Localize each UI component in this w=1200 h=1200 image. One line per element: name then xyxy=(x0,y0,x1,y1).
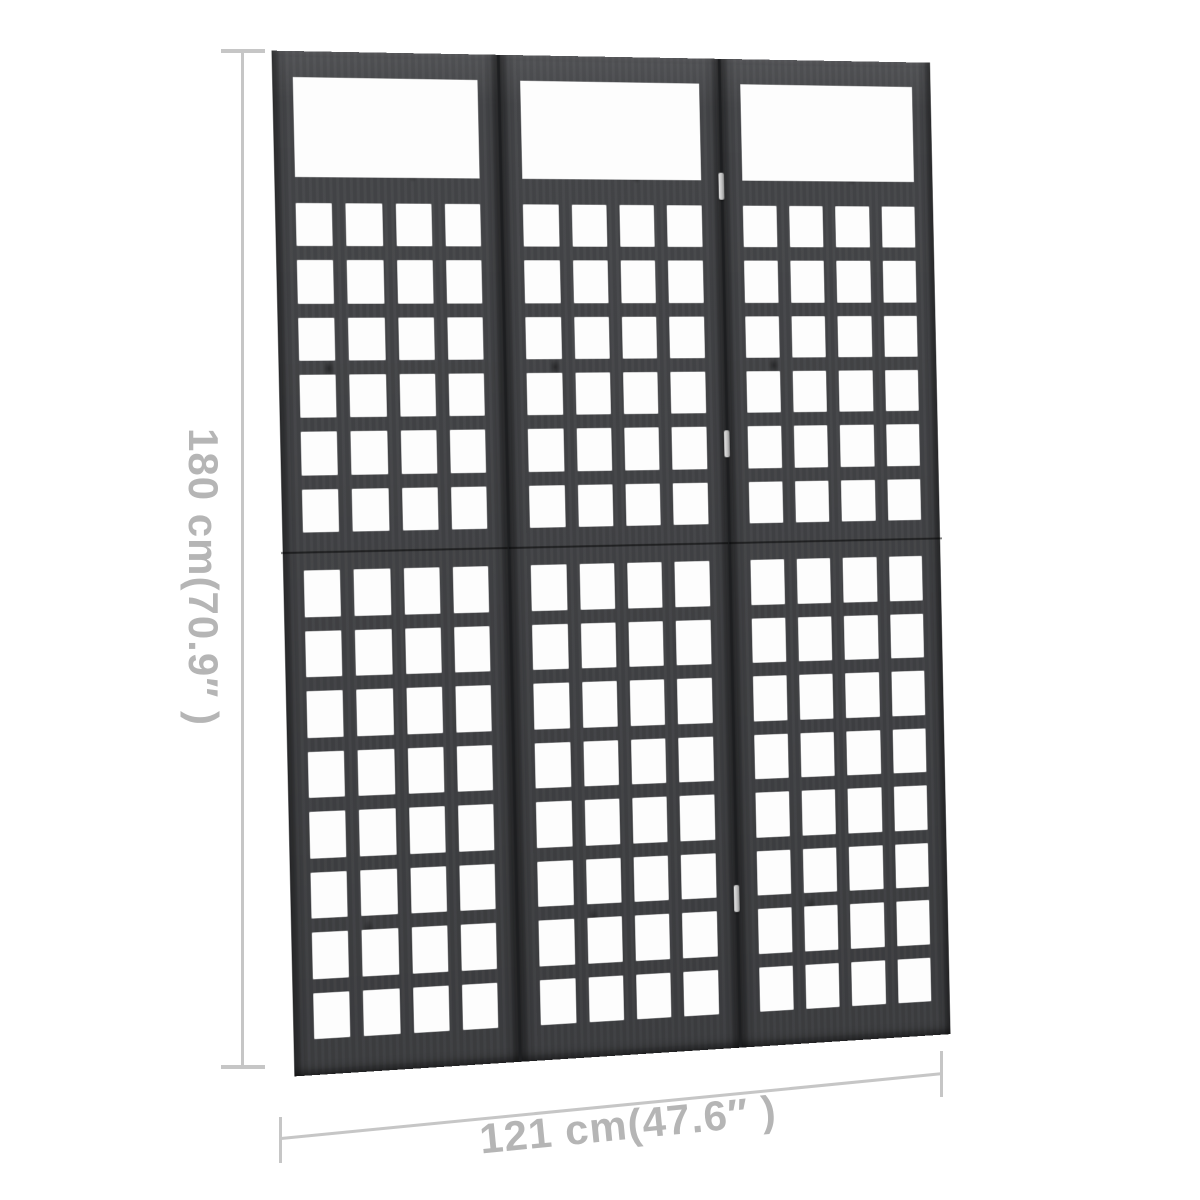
lattice-hole xyxy=(410,866,447,914)
height-dimension-line xyxy=(241,52,244,1068)
lattice-hole xyxy=(301,432,338,476)
lattice-hole xyxy=(409,806,446,854)
lattice-hole xyxy=(574,317,610,359)
panel-mid-rail xyxy=(282,528,508,571)
lattice-hole xyxy=(747,426,782,468)
lattice-hole xyxy=(454,626,491,673)
lattice-hole xyxy=(312,931,349,979)
lattice-hole xyxy=(794,426,829,468)
lattice-hole xyxy=(803,847,838,893)
lattice-hole xyxy=(835,206,869,247)
lattice-hole xyxy=(305,630,342,677)
lattice-hole xyxy=(313,991,350,1039)
lattice-hole xyxy=(758,907,793,953)
lattice-hole xyxy=(748,481,783,523)
lattice-hole xyxy=(744,261,779,303)
lattice-hole xyxy=(363,988,400,1036)
hinge xyxy=(718,173,724,200)
lattice-hole xyxy=(802,789,837,835)
lattice-hole xyxy=(631,738,667,784)
lattice-hole xyxy=(355,628,392,675)
lattice-hole xyxy=(399,374,436,417)
lattice-hole xyxy=(890,613,924,658)
lattice-hole xyxy=(350,374,387,417)
panel-open-window xyxy=(740,84,914,182)
lattice-hole xyxy=(672,427,707,469)
width-dimension-tick-right xyxy=(940,1051,943,1097)
hinge xyxy=(724,430,730,457)
divider-panel xyxy=(717,59,950,1048)
lattice-hole xyxy=(843,557,877,602)
lattice-hole xyxy=(579,563,615,609)
lattice-hole xyxy=(578,484,614,527)
lattice-hole xyxy=(795,480,830,522)
lattice-hole xyxy=(745,316,780,358)
panel-rail xyxy=(723,180,933,206)
lattice-hole xyxy=(753,675,788,721)
lattice-hole xyxy=(395,204,432,247)
lattice-hole xyxy=(635,914,671,961)
lattice-hole xyxy=(886,424,920,466)
lattice-hole xyxy=(527,373,563,416)
lattice-hole xyxy=(299,375,336,419)
lattice-hole xyxy=(405,627,442,674)
lattice-hole xyxy=(632,797,668,844)
panel-rail xyxy=(503,179,721,206)
lattice-hole xyxy=(756,849,791,895)
lattice-hole xyxy=(581,622,617,668)
lattice-hole xyxy=(667,205,702,247)
width-dimension-label: 121 cm(47.6″ ) xyxy=(477,1087,778,1164)
lattice-hole xyxy=(302,489,339,533)
lattice-hole xyxy=(532,623,568,670)
lattice-hole xyxy=(398,317,435,360)
lattice-hole xyxy=(891,671,925,716)
height-dimension-label: 180 cm(70.9″ ) xyxy=(179,428,227,726)
lattice-hole xyxy=(793,371,828,413)
lattice-hole xyxy=(844,615,878,660)
panel-top-rail xyxy=(500,55,718,84)
lattice-hole xyxy=(583,740,619,787)
lattice-hole xyxy=(406,687,443,734)
lattice-hole xyxy=(447,317,484,360)
lattice-hole xyxy=(411,925,448,973)
lattice-hole xyxy=(539,919,575,966)
lattice-hole xyxy=(358,748,395,796)
lattice-hole xyxy=(347,260,384,303)
lattice-hole xyxy=(535,742,571,789)
lattice-hole xyxy=(636,972,672,1019)
divider-panel xyxy=(272,51,520,1077)
lattice-hole xyxy=(896,900,930,946)
height-dimension-tick-bottom xyxy=(221,1065,265,1069)
lattice-hole xyxy=(841,480,875,522)
height-dimension-tick-top xyxy=(221,49,265,53)
lattice-hole xyxy=(309,810,346,858)
lattice-hole xyxy=(669,316,704,358)
lattice-hole xyxy=(750,559,785,605)
lattice-hole xyxy=(586,857,622,904)
lattice-hole xyxy=(354,568,391,615)
lattice-hole xyxy=(526,317,562,360)
lattice-hole xyxy=(536,801,572,848)
lattice-hole xyxy=(451,486,488,529)
product-dimension-image: 180 cm(70.9″ ) 121 cm(47.6″ ) xyxy=(0,0,1200,1200)
lattice-hole xyxy=(357,688,394,735)
lattice-hole xyxy=(895,843,929,889)
lattice-hole xyxy=(296,203,333,246)
lattice-hole xyxy=(848,787,882,833)
panel-mid-rail xyxy=(510,524,728,566)
lattice-hole xyxy=(534,682,570,729)
lattice-hole xyxy=(462,982,499,1030)
lattice-hole xyxy=(404,567,441,614)
lattice-hole xyxy=(400,430,437,473)
lattice-hole xyxy=(676,619,711,665)
lattice-hole xyxy=(306,690,343,738)
lattice-hole xyxy=(675,561,710,607)
lattice-hole xyxy=(892,728,926,773)
panel-mid-rail xyxy=(730,519,940,560)
lattice-hole xyxy=(531,564,567,610)
lattice-hole xyxy=(684,969,719,1016)
lattice-hole xyxy=(449,373,486,416)
lattice-hole xyxy=(619,205,655,247)
lattice-hole xyxy=(671,372,706,414)
lattice-hole xyxy=(571,205,607,247)
lattice-hole xyxy=(621,261,657,303)
lattice-hole xyxy=(576,428,612,471)
lattice-hole xyxy=(402,487,439,531)
lattice-hole xyxy=(881,207,915,248)
panel-rail xyxy=(274,177,500,204)
lattice-hole xyxy=(838,316,872,358)
lattice-hole xyxy=(538,860,574,907)
panel-open-window xyxy=(293,77,480,178)
lattice-hole xyxy=(308,750,345,798)
lattice-hole xyxy=(297,260,334,303)
lattice-hole xyxy=(797,558,832,603)
lattice-hole xyxy=(805,962,840,1008)
panel-open-window xyxy=(520,81,700,181)
lattice-hole xyxy=(413,985,450,1033)
lattice-hole xyxy=(455,685,492,732)
lattice-hole xyxy=(849,845,883,891)
width-dimension-tick-left xyxy=(279,1117,282,1163)
lattice-hole xyxy=(679,736,714,782)
lattice-hole xyxy=(397,260,434,303)
lattice-hole xyxy=(346,203,383,246)
lattice-hole xyxy=(887,479,921,521)
lattice-hole xyxy=(457,745,494,792)
lattice-hole xyxy=(458,804,495,851)
lattice-hole xyxy=(682,911,717,958)
lattice-hole xyxy=(523,204,559,247)
panel-upper-lattice xyxy=(296,203,488,533)
lattice-hole xyxy=(623,372,659,414)
lattice-hole xyxy=(348,317,385,360)
lattice-hole xyxy=(298,317,335,360)
lattice-hole xyxy=(840,425,874,467)
lattice-hole xyxy=(755,791,790,837)
lattice-hole xyxy=(789,206,824,248)
lattice-hole xyxy=(677,678,712,724)
lattice-hole xyxy=(681,853,716,900)
lattice-hole xyxy=(628,621,664,667)
lattice-hole xyxy=(446,260,483,303)
lattice-hole xyxy=(889,556,923,601)
lattice-hole xyxy=(800,731,835,777)
lattice-hole xyxy=(746,371,781,413)
lattice-hole xyxy=(445,204,482,247)
lattice-hole xyxy=(310,871,347,919)
panel-upper-lattice xyxy=(523,204,708,528)
lattice-hole xyxy=(622,316,658,358)
lattice-hole xyxy=(897,957,931,1003)
lattice-hole xyxy=(754,733,789,779)
lattice-hole xyxy=(885,370,919,412)
lattice-hole xyxy=(540,978,576,1026)
lattice-hole xyxy=(668,261,703,303)
lattice-hole xyxy=(625,483,661,526)
hinge xyxy=(733,885,739,912)
lattice-hole xyxy=(453,566,490,613)
lattice-hole xyxy=(459,863,496,911)
lattice-hole xyxy=(627,562,663,608)
lattice-hole xyxy=(799,674,834,720)
lattice-hole xyxy=(845,672,879,717)
lattice-hole xyxy=(582,681,618,728)
panel-top-rail xyxy=(720,59,930,87)
lattice-hole xyxy=(894,785,928,831)
lattice-hole xyxy=(680,794,715,840)
panel-lower-lattice xyxy=(531,561,719,1025)
lattice-hole xyxy=(304,570,341,617)
lattice-hole xyxy=(790,261,825,303)
lattice-hole xyxy=(624,428,660,471)
panel-top-rail xyxy=(272,51,498,81)
lattice-hole xyxy=(575,372,611,415)
lattice-hole xyxy=(529,485,565,528)
lattice-hole xyxy=(524,261,560,303)
lattice-hole xyxy=(630,679,666,725)
lattice-hole xyxy=(791,316,826,358)
lattice-hole xyxy=(352,488,389,532)
lattice-hole xyxy=(882,261,916,302)
room-divider xyxy=(272,51,951,1077)
panel-lower-lattice xyxy=(304,566,499,1039)
lattice-hole xyxy=(359,808,396,856)
lattice-hole xyxy=(884,316,918,357)
lattice-hole xyxy=(851,960,885,1006)
lattice-hole xyxy=(743,206,778,248)
lattice-hole xyxy=(839,370,873,412)
lattice-hole xyxy=(361,868,398,916)
lattice-hole xyxy=(850,902,884,948)
lattice-hole xyxy=(362,928,399,976)
lattice-hole xyxy=(587,916,623,963)
lattice-hole xyxy=(634,855,670,902)
lattice-hole xyxy=(450,430,487,473)
lattice-hole xyxy=(588,975,624,1022)
lattice-hole xyxy=(837,261,871,302)
lattice-hole xyxy=(798,616,833,662)
lattice-hole xyxy=(804,905,839,951)
panel-lower-lattice xyxy=(750,556,931,1012)
lattice-hole xyxy=(461,923,498,971)
lattice-hole xyxy=(847,730,881,776)
lattice-hole xyxy=(573,261,609,303)
lattice-hole xyxy=(528,429,564,472)
lattice-hole xyxy=(673,482,708,525)
lattice-hole xyxy=(351,431,388,475)
lattice-hole xyxy=(584,799,620,846)
lattice-hole xyxy=(407,746,444,793)
panel-upper-lattice xyxy=(743,206,922,524)
lattice-hole xyxy=(759,965,794,1012)
divider-panel xyxy=(497,55,739,1062)
lattice-hole xyxy=(751,617,786,663)
